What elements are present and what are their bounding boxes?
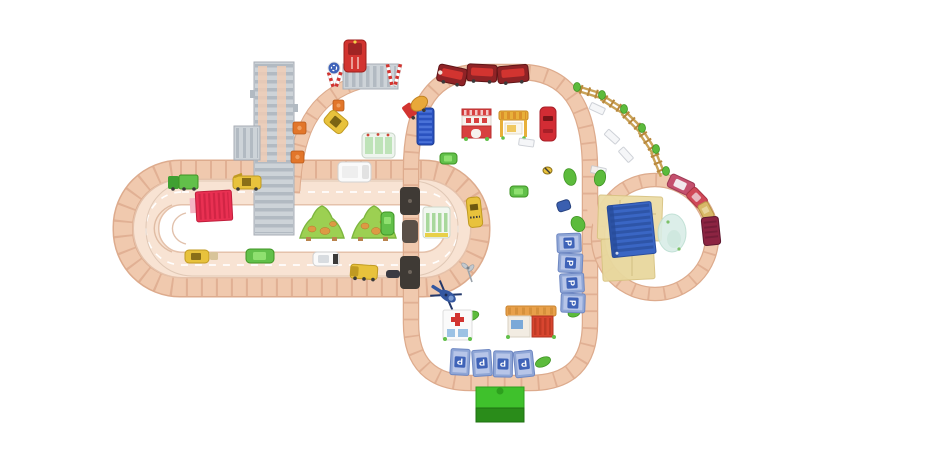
green-car-bottom [246,249,274,263]
station-door [471,129,481,138]
taxi-windshield [470,204,479,211]
tree-trunk-2 [332,237,337,241]
elevated-bridge-ramp [234,62,298,235]
pond-plant [666,220,669,223]
parking-tile-row: P P P P [450,349,535,378]
stall-post [524,120,527,137]
parking-letter: P [520,358,527,369]
inner-cap-arc-2 [172,213,186,244]
bus-shelter-bar [444,213,448,232]
bus-shelter-bar [438,213,442,232]
parking-letter: P [567,300,577,306]
red-car-windshield [543,116,553,121]
tree-with-animals-1 [300,206,344,241]
dark-car-body [386,270,400,278]
bench-icon [604,129,620,144]
green-car-roof [384,217,391,224]
bus-shelter-bar [432,213,436,232]
bus-shelter-base [425,233,448,237]
bench-icon [589,102,606,115]
ramp-rail-right [277,66,286,162]
bridge-piece-middle [402,220,418,243]
parking-letter: P [479,357,486,367]
market-stall [499,111,528,140]
parking-tile: P [557,233,582,253]
blue-warehouse [607,201,656,257]
orange-marker-2-dot [297,126,301,130]
bench-icon [618,147,633,163]
yellow-car-window [191,253,201,260]
green-truck [168,175,198,191]
yellow-truck-cab [350,266,359,277]
bridge-rivet-1 [408,199,412,203]
product-photo: P P P P P P P [0,0,950,470]
tree-trunk [306,237,311,241]
hospital-door [458,329,468,337]
shelter-dot [377,133,380,136]
greenhouse-shelter [362,133,395,158]
yellow-truck-bottom [350,264,378,282]
orange-marker-1-dot [337,104,341,108]
blue-container [417,108,434,145]
station-wheel [485,137,489,141]
train-car-top [471,67,493,76]
animal-icon [308,226,316,232]
windmill-hub [467,267,470,270]
bush-icon [534,355,552,370]
truck-cab [168,176,179,189]
white-van-top [338,162,371,182]
bench-icon [519,138,535,147]
circle-interior [597,195,686,281]
red-car-body [540,107,556,141]
blue-car-small [556,199,571,213]
fence-bush [574,83,581,92]
train-car-2 [466,64,497,84]
hospital-grass [443,337,447,341]
sign-post-left-stripes [329,72,334,86]
rail-bridge-pieces [400,187,420,289]
van-cab [362,165,369,179]
yellow-car-on-curve [322,109,349,135]
fence-bush [599,91,606,100]
parking-tile: P [561,293,586,313]
animal-icon [330,222,337,227]
animal-icon [372,228,381,235]
parking-tile: P [493,351,512,377]
tunnel-notch [497,388,504,395]
green-car-mid-2 [510,186,528,197]
green-car-by-rail [381,212,394,235]
shelter-panel [385,137,392,154]
station-window [482,118,487,123]
green-car-roof [253,252,266,260]
green-car-mid [440,153,457,164]
garage-grass [506,335,510,339]
parking-tile: P [450,349,470,376]
fire-station [462,109,491,141]
pond-inner [667,230,681,248]
parking-letter: P [563,240,573,246]
fire-truck-light [353,40,356,43]
bus-shelter [423,207,450,238]
yellow-digger [233,174,261,191]
blue-car-body [556,199,571,213]
bridge-rivet-2 [408,270,412,274]
pond [658,214,686,252]
tunnel-base [476,408,524,422]
stall-wheel [501,136,505,140]
parking-tile-column: P P P P [557,233,586,313]
orange-marker-3-dot [295,155,299,159]
bush-icon [562,167,578,187]
red-car-vertical [540,107,556,141]
blue-sign-face [328,62,340,74]
maroon-wagon [701,216,721,246]
bee-toy [543,167,552,174]
parking-letter: P [565,260,575,267]
green-tunnel [476,387,524,422]
parking-letter: P [566,280,576,287]
green-car-roof [444,156,452,162]
hospital [443,310,472,341]
white-car-rear [333,254,338,264]
shelter-dot [367,134,370,137]
station-wheel [464,137,468,141]
train-set-illustration: P P P P P P P [0,0,950,470]
shelter-panel [365,137,373,154]
animal-icon [361,223,369,229]
van-roof [342,166,358,178]
shelter-panel [375,137,383,154]
animal-icon [320,228,330,235]
hospital-window [447,329,455,337]
garage-shop [506,306,556,339]
digger-cab [242,178,251,186]
station-window [466,118,471,123]
red-car-rear-window [543,129,553,133]
bus-shelter-bar [426,213,430,232]
train-car-3 [497,64,530,85]
garage-window [511,320,523,329]
station-window [474,118,479,123]
garage-grass [552,335,556,339]
parking-tile: P [558,253,583,273]
tree-trunk [358,237,363,241]
parking-letter: P [457,356,464,366]
fence-bush [663,167,670,176]
pond-plant-2 [677,247,680,250]
small-dark-car [386,270,400,278]
shelter-dot [387,134,390,137]
small-trailer [210,252,218,260]
maroon-wagon-body [701,216,721,246]
hospital-grass [468,337,472,341]
fire-truck [344,40,366,72]
yellow-taxi [466,197,483,228]
white-car-bottom [313,252,339,266]
stall-goods [507,125,516,132]
ramp-tab-2 [293,104,298,112]
green-car-roof [514,189,523,195]
stall-post [500,120,503,137]
taxi-body [466,197,483,228]
white-car-window [318,255,329,263]
parking-tile: P [513,350,535,378]
fence-bush [653,145,660,154]
fence-bush [639,124,646,133]
red-container [189,190,233,222]
fence-bush [621,105,628,114]
truck-bed [179,175,198,189]
parking-tile: P [472,349,493,376]
parking-tile: P [560,273,585,293]
tree-trunk-2 [383,237,388,241]
parking-letter: P [500,358,506,368]
ramp-tab-1 [250,90,255,98]
fire-truck-cab-roof [348,43,362,55]
